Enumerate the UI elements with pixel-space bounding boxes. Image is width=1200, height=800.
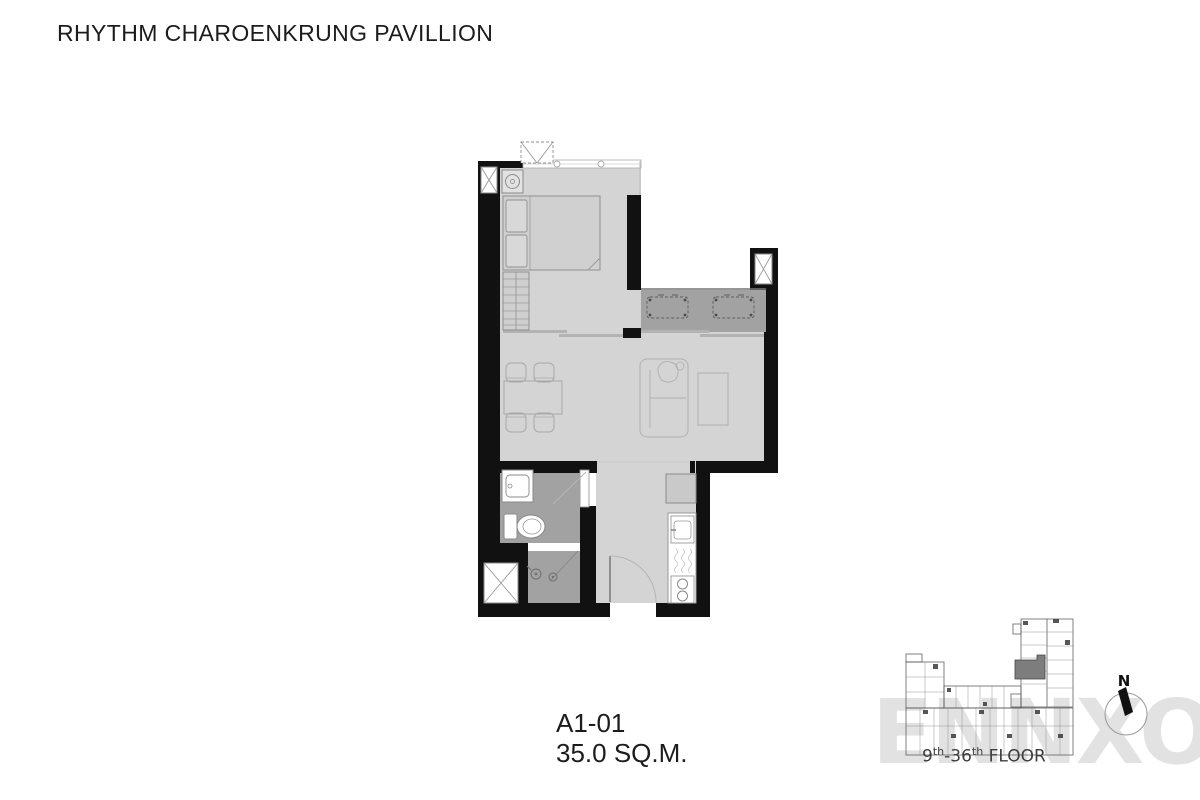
floorplan-canvas: N: [0, 0, 1200, 800]
bathroom-vanity: [502, 470, 533, 502]
floor-from-sup: th: [933, 745, 944, 758]
north-arrow: N: [1105, 672, 1147, 735]
wardrobe: [503, 272, 529, 330]
building-key-plan: [906, 619, 1073, 755]
floor-from: 9: [922, 747, 933, 767]
bed: [503, 196, 600, 270]
toilet: [504, 514, 545, 539]
floor-range-label: 9th-36th FLOOR: [922, 745, 1046, 767]
unit-floor-plan: [478, 142, 778, 617]
project-title: RHYTHM CHAROENKRUNG PAVILLION: [57, 20, 493, 47]
north-needle: [1118, 687, 1133, 716]
washing-machine-icon: [502, 170, 523, 193]
unit-label: A1-01 35.0 SQ.M.: [556, 708, 688, 768]
refrigerator: [666, 474, 696, 503]
floor-to-sup: th: [972, 745, 983, 758]
floor-to: -36: [944, 747, 972, 767]
kitchen-counter: [668, 513, 696, 603]
unit-area: 35.0 SQ.M.: [556, 738, 688, 768]
outdoor-ac-icon: [521, 142, 553, 163]
living-floor: [500, 332, 764, 461]
unit-code: A1-01: [556, 708, 688, 738]
north-label: N: [1118, 672, 1131, 690]
page: { "title": "RHYTHM CHAROENKRUNG PAVILLIO…: [0, 0, 1200, 800]
keyplan-highlighted-unit: [1015, 655, 1045, 679]
floor-word: FLOOR: [983, 747, 1046, 767]
